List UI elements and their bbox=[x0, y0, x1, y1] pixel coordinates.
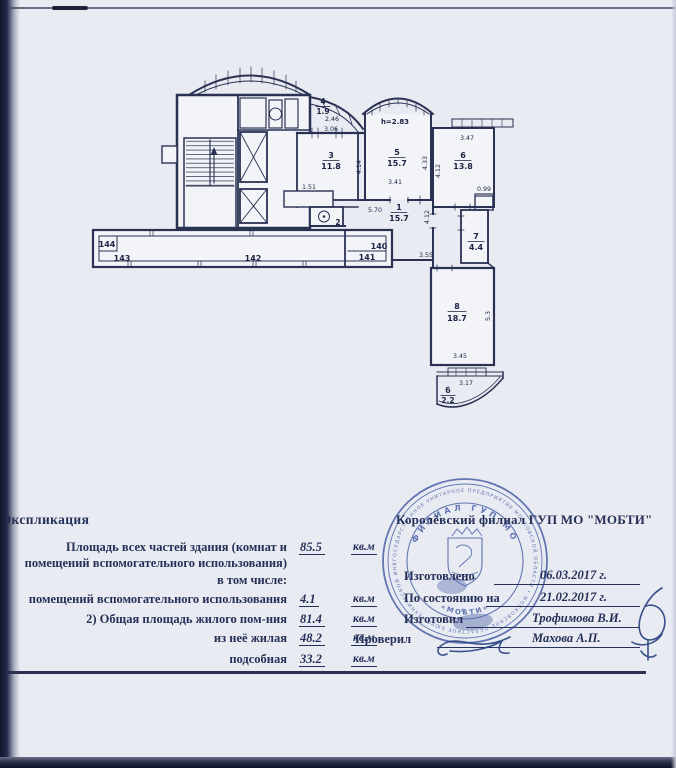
signature-makhova bbox=[438, 637, 510, 655]
scan-edge-left bbox=[0, 0, 20, 768]
signature-trofimova bbox=[632, 588, 665, 645]
scan-edge-right bbox=[671, 0, 676, 768]
scan-edge-top-mark bbox=[52, 6, 88, 10]
signature-trofimova-tail bbox=[641, 640, 656, 660]
scan-edge-bottom bbox=[0, 757, 676, 768]
signatures-svg bbox=[0, 0, 676, 768]
scan-edge-top bbox=[10, 7, 676, 9]
scanned-bti-floor-plan-page: { "page": { "bg": "#e9ebf2", "ink": "#2a… bbox=[0, 0, 676, 768]
